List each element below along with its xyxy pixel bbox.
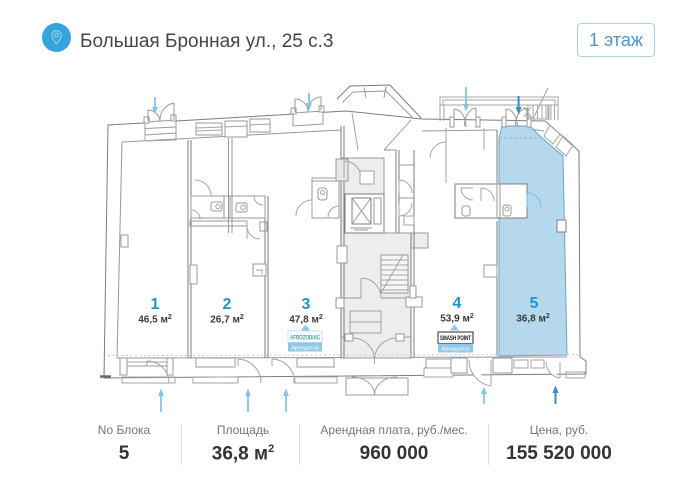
svg-text:5: 5 [530, 295, 539, 312]
svg-text:4: 4 [453, 295, 462, 312]
svg-text:47,8 м2: 47,8 м2 [289, 314, 323, 326]
svg-text:Арендатор: Арендатор [291, 346, 319, 352]
svg-text:46,5 м2: 46,5 м2 [138, 314, 172, 326]
svg-text:SMASH POINT: SMASH POINT [440, 336, 471, 342]
svg-text:AFROZODIAC: AFROZODIAC [290, 336, 320, 342]
svg-text:3: 3 [302, 296, 311, 313]
svg-text:Арендатор: Арендатор [442, 347, 470, 353]
svg-text:26,7 м2: 26,7 м2 [210, 314, 244, 326]
svg-text:36,8 м2: 36,8 м2 [516, 313, 550, 325]
svg-text:53,9 м2: 53,9 м2 [440, 313, 474, 325]
svg-text:1: 1 [151, 296, 160, 313]
svg-text:2: 2 [223, 296, 232, 313]
